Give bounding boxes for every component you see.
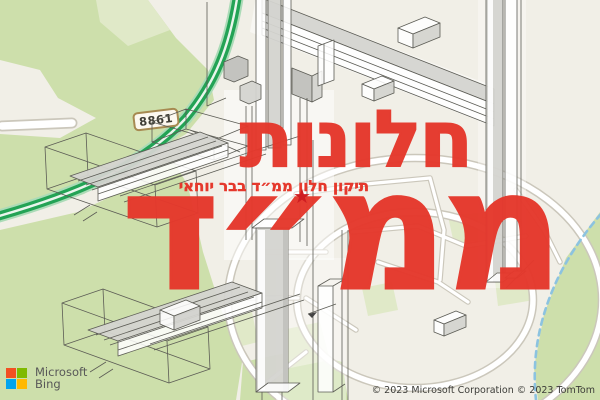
logo-square-green <box>17 368 27 378</box>
microsoft-logo-icon <box>6 368 27 389</box>
bing-logo-text: Microsoft Bing <box>35 366 87 391</box>
bing-logo[interactable]: Microsoft Bing <box>6 366 87 391</box>
logo-line-bing: Bing <box>35 378 87 391</box>
overlay-subtitle: תיקון חלון ממ״ד בבר יוחאי <box>179 177 369 195</box>
map-screenshot: 8861 <box>0 0 600 400</box>
map-attribution: © 2023 Microsoft Corporation © 2023 TomT… <box>372 385 595 396</box>
star-icon: ★ <box>293 186 311 206</box>
logo-square-yellow <box>17 379 27 389</box>
logo-square-blue <box>6 379 16 389</box>
overlay-heading-mamad: ממ״ד <box>122 149 559 314</box>
logo-square-red <box>6 368 16 378</box>
